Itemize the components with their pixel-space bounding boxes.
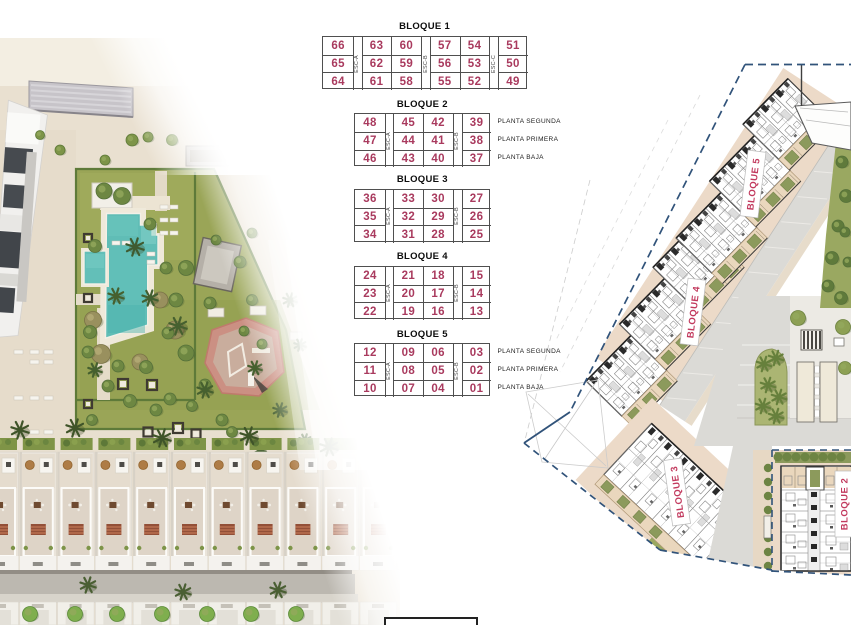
svg-text:BLOQUE 2: BLOQUE 2	[840, 478, 851, 531]
